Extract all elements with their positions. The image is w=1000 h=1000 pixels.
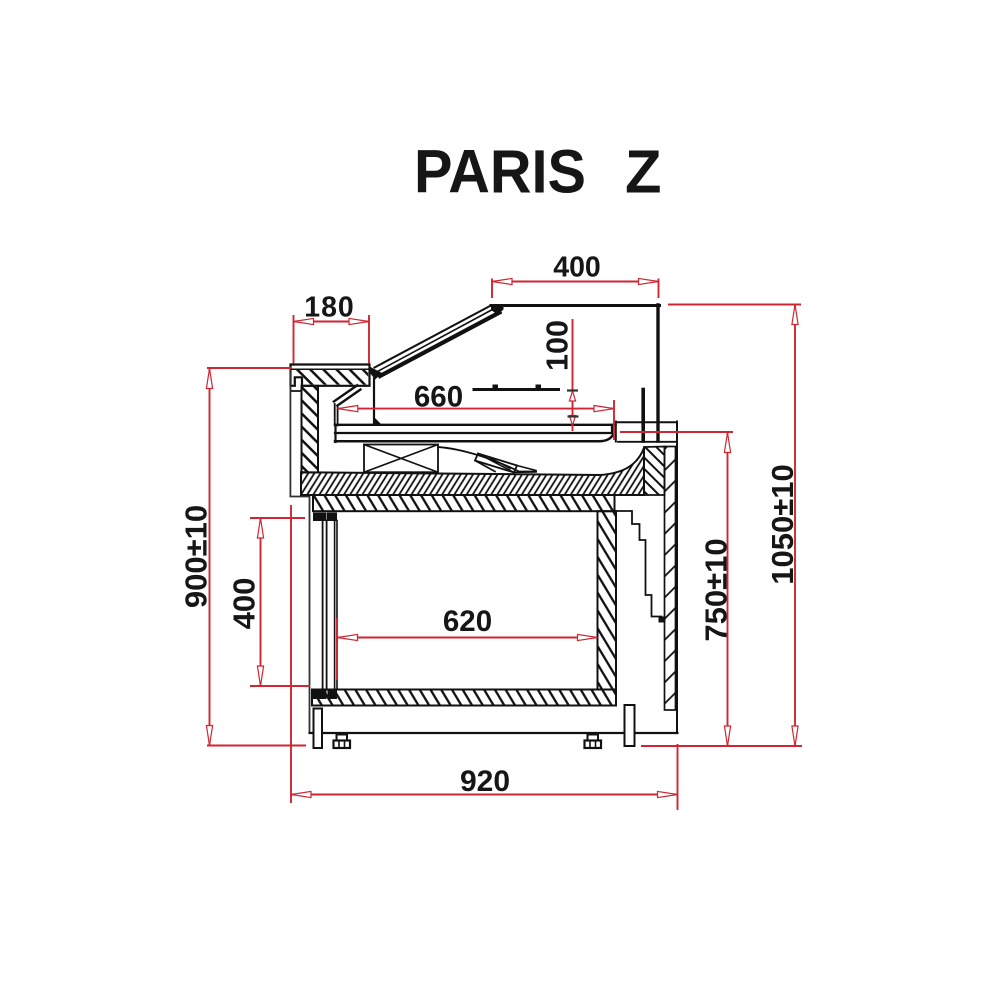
- svg-text:180: 180: [304, 292, 355, 324]
- svg-text:1050±10: 1050±10: [765, 464, 800, 584]
- svg-text:400: 400: [227, 578, 262, 630]
- svg-text:750±10: 750±10: [699, 538, 734, 641]
- svg-text:660: 660: [414, 381, 463, 414]
- svg-text:PARIS: PARIS: [414, 138, 586, 207]
- svg-text:Z: Z: [625, 138, 662, 207]
- svg-text:100: 100: [541, 320, 575, 371]
- svg-text:900±10: 900±10: [179, 505, 214, 608]
- svg-text:400: 400: [553, 252, 601, 284]
- svg-text:620: 620: [443, 605, 492, 638]
- svg-text:920: 920: [460, 765, 510, 798]
